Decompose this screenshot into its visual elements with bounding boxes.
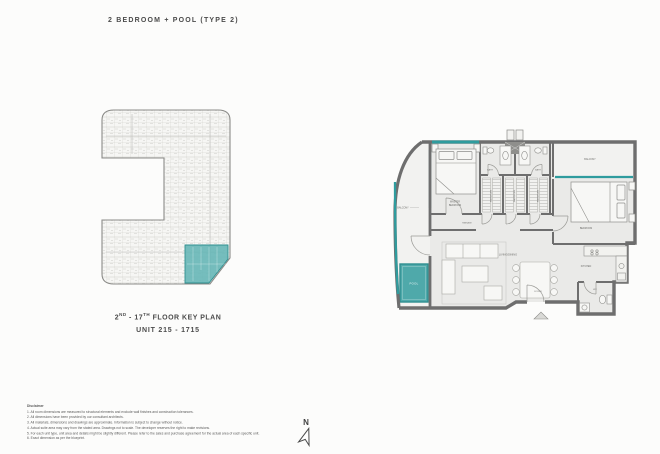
label-balcony-right: BALCONY [584, 158, 596, 161]
north-compass: N [292, 419, 320, 452]
north-arrow-icon [295, 427, 317, 447]
bedroom-bed [571, 182, 635, 222]
key-plan-floor-range: 2ND - 17TH FLOOR KEY PLAN [68, 312, 268, 321]
label-bedroom: BEDROOM [580, 227, 592, 230]
disclaimer: Disclaimer 1. All room dimensions are me… [27, 404, 379, 442]
label-living-dining: LIVING/DINING [499, 253, 517, 257]
key-plan-highlighted-unit [185, 245, 228, 283]
label-kitchen: KITCHEN [581, 265, 592, 268]
key-plan-caption: 2ND - 17TH FLOOR KEY PLAN UNIT 215 - 171… [68, 312, 268, 334]
label-bath-right: BATH [535, 169, 541, 172]
entry-step [534, 312, 548, 319]
floor-plan-page: 2 BEDROOM + POOL (TYPE 2) 2ND - 17TH FLO… [0, 0, 660, 454]
master-bed [432, 144, 480, 194]
label-master-bedroom-2: BEDROOM [449, 204, 461, 207]
label-wardrobe-2: WARDROBE [513, 189, 516, 202]
pool: POOL [400, 264, 428, 302]
label-wardrobe-3: WARDROBE [537, 189, 540, 202]
disclaimer-heading: Disclaimer [27, 404, 379, 409]
pool-label: POOL [410, 282, 419, 286]
key-plan [98, 102, 234, 290]
label-passage: PASSAGE [462, 222, 472, 225]
key-plan-unit-range: UNIT 215 - 1715 [68, 327, 268, 334]
label-foyer: FOYER [534, 291, 542, 293]
north-label: N [292, 419, 320, 427]
label-bath-left: BATH [487, 169, 493, 172]
label-balcony-left: BALCONY [397, 207, 409, 210]
label-wc: WC [593, 289, 597, 291]
page-title: 2 BEDROOM + POOL (TYPE 2) [108, 17, 239, 24]
disclaimer-line: 6. Exact dimension as per the blueprint. [27, 437, 379, 442]
unit-floor-plan: POOL [388, 118, 642, 322]
label-wardrobe-1: WARDROBE [490, 189, 493, 202]
